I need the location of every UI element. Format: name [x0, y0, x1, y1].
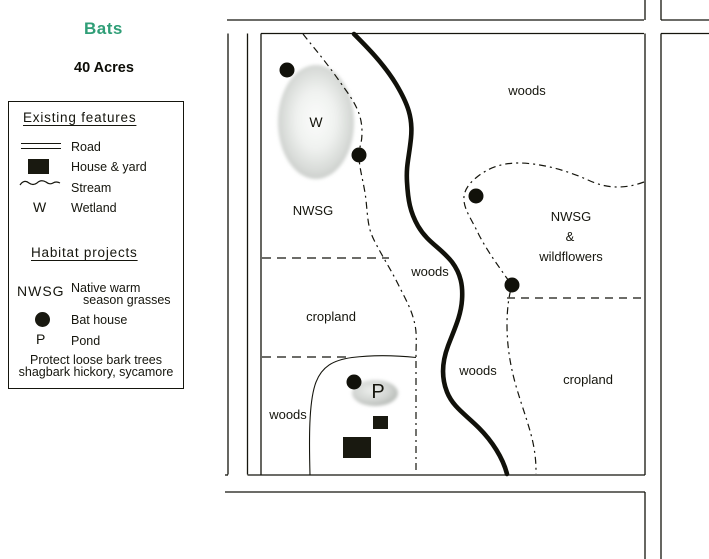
- map-canvas: [0, 0, 709, 559]
- map-label-woods-center: woods: [411, 264, 449, 279]
- map-label-pond-p: P: [371, 381, 384, 404]
- map-label-woods-southeast: woods: [459, 363, 497, 378]
- stream-path: [354, 34, 507, 474]
- house-rect-small: [373, 416, 388, 429]
- map-label-wildflowers: wildflowers: [539, 249, 603, 264]
- house-rect-large: [343, 437, 371, 458]
- map-label-nwsg-east: NWSG: [551, 209, 591, 224]
- bat-house-dot: [352, 148, 367, 163]
- map-label-ampersand: &: [566, 229, 575, 244]
- bat-house-dot: [469, 189, 484, 204]
- map-label-wetland-w: W: [309, 114, 322, 130]
- bat-house-dot: [347, 375, 362, 390]
- map-label-woods-southwest: woods: [269, 407, 307, 422]
- map-label-cropland-west: cropland: [306, 309, 356, 324]
- map-label-cropland-east: cropland: [563, 372, 613, 387]
- habitat-plan-page: { "title": "Bats", "subtitle": "40 Acres…: [0, 0, 709, 559]
- bat-house-dot: [280, 63, 295, 78]
- map-label-woods-north: woods: [508, 83, 546, 98]
- map-label-nwsg-west: NWSG: [293, 203, 333, 218]
- bat-house-dot: [505, 278, 520, 293]
